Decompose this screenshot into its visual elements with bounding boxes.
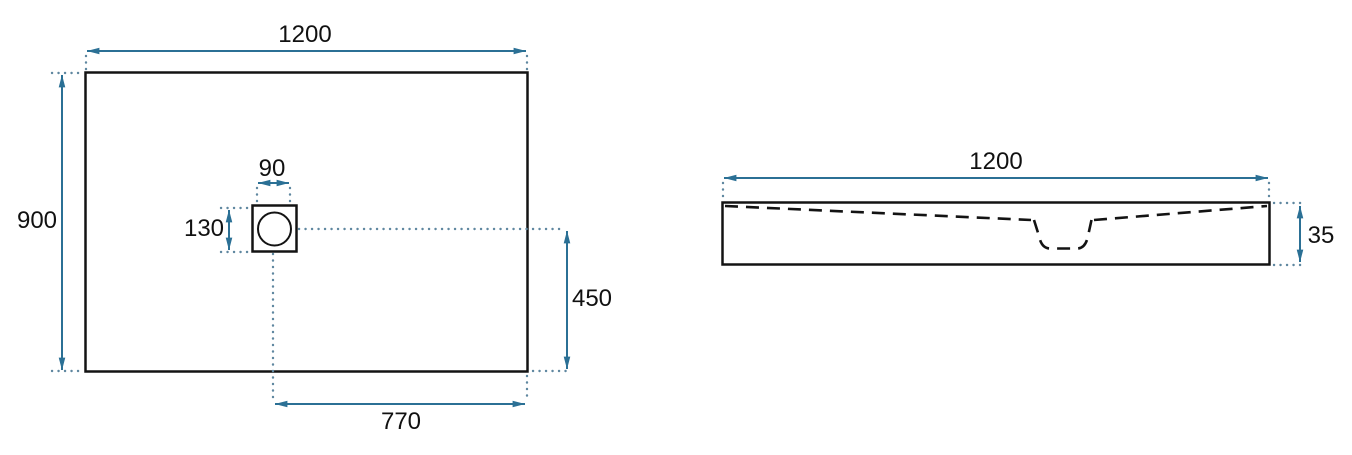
technical-drawing: 1200 900 90 130 [0,0,1352,455]
technical-drawing-canvas: 1200 900 90 130 [0,0,1352,455]
dim-label-side-thickness: 35 [1308,222,1335,249]
dim-side-width: 1200 [723,148,1269,199]
side-view: 1200 35 [723,148,1335,265]
dim-label-drain-height: 130 [184,215,224,242]
dim-label-side-width: 1200 [969,148,1022,175]
dim-drain-to-right: 770 [275,376,527,435]
dim-side-thickness: 35 [1274,203,1334,265]
dim-drain-to-bottom: 450 [533,231,612,371]
top-view: 1200 900 90 130 [17,21,612,435]
dim-label-drain-to-bottom: 450 [572,285,612,312]
drain-hole [258,213,291,246]
dim-label-left-height: 900 [17,207,57,234]
dim-top-width: 1200 [86,21,527,70]
dim-left-height: 900 [17,73,82,371]
dim-label-top-width: 1200 [278,21,331,48]
dim-label-drain-to-right: 770 [381,408,421,435]
dim-label-drain-width: 90 [259,155,286,182]
tray-outline-top-view [86,73,528,372]
